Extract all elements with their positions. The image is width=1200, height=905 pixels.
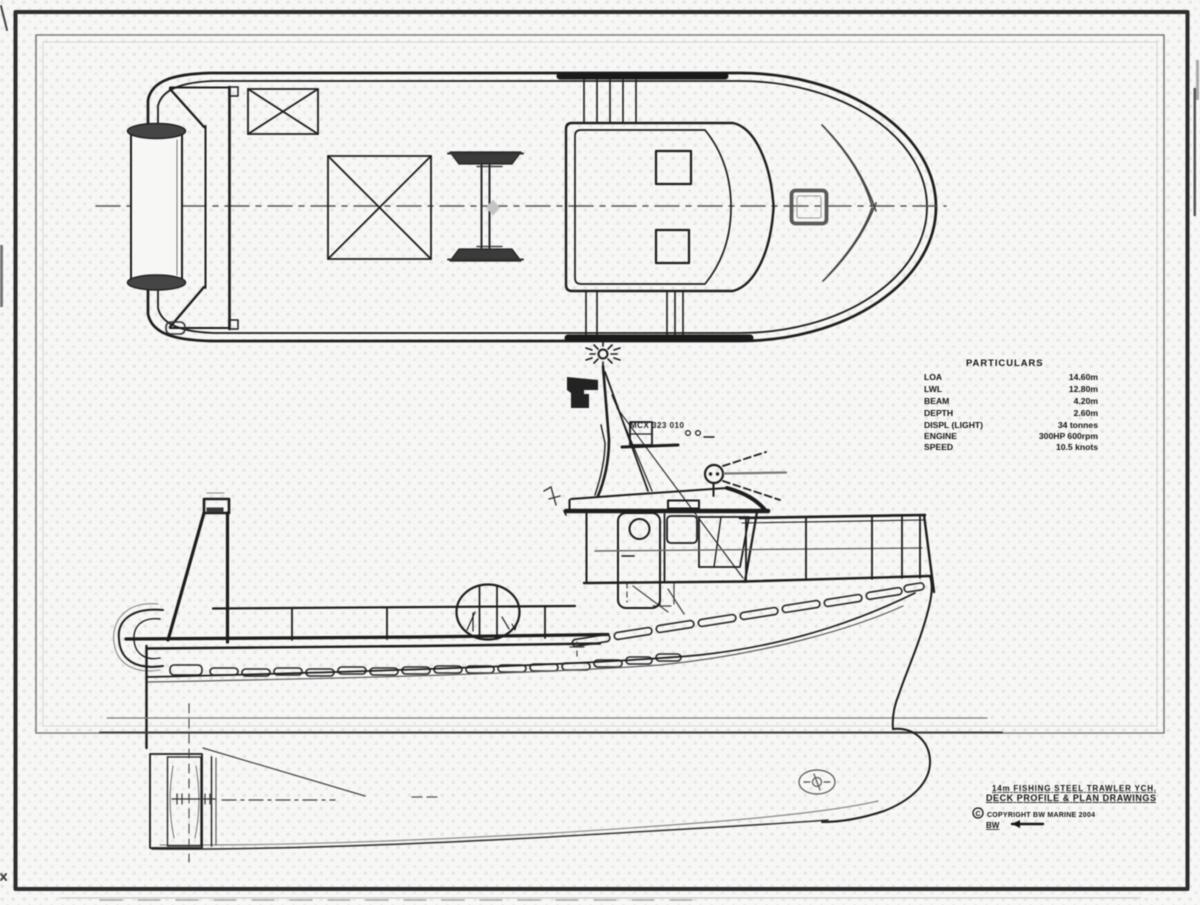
svg-text:2.60m: 2.60m <box>1074 408 1099 418</box>
svg-text:10.5 knots: 10.5 knots <box>1056 442 1098 452</box>
svg-text:BW: BW <box>986 821 1000 830</box>
svg-text:DISPL (LIGHT): DISPL (LIGHT) <box>924 420 983 430</box>
svg-text:BEAM: BEAM <box>924 396 949 406</box>
svg-text:MCX 323 010: MCX 323 010 <box>630 421 684 430</box>
svg-text:DECK PROFILE & PLAN DRAWINGS: DECK PROFILE & PLAN DRAWINGS <box>986 793 1156 803</box>
svg-text:14m FISHING STEEL TRAWLER YCH.: 14m FISHING STEEL TRAWLER YCH. <box>992 784 1156 793</box>
svg-text:14.60m: 14.60m <box>1069 372 1099 382</box>
svg-text:COPYRIGHT BW MARINE 2004: COPYRIGHT BW MARINE 2004 <box>987 812 1095 819</box>
svg-text:4.20m: 4.20m <box>1074 396 1099 406</box>
svg-text:C: C <box>976 811 981 818</box>
svg-text:SPEED: SPEED <box>924 442 953 452</box>
svg-text:PARTICULARS: PARTICULARS <box>966 357 1044 368</box>
svg-text:LWL: LWL <box>924 384 942 394</box>
svg-text:300HP 600rpm: 300HP 600rpm <box>1039 431 1098 441</box>
svg-text:ENGINE: ENGINE <box>924 431 957 441</box>
svg-text:12.80m: 12.80m <box>1069 384 1099 394</box>
svg-text:LOA: LOA <box>924 372 942 382</box>
svg-text:34 tonnes: 34 tonnes <box>1058 420 1098 430</box>
svg-text:DEPTH: DEPTH <box>924 408 953 418</box>
